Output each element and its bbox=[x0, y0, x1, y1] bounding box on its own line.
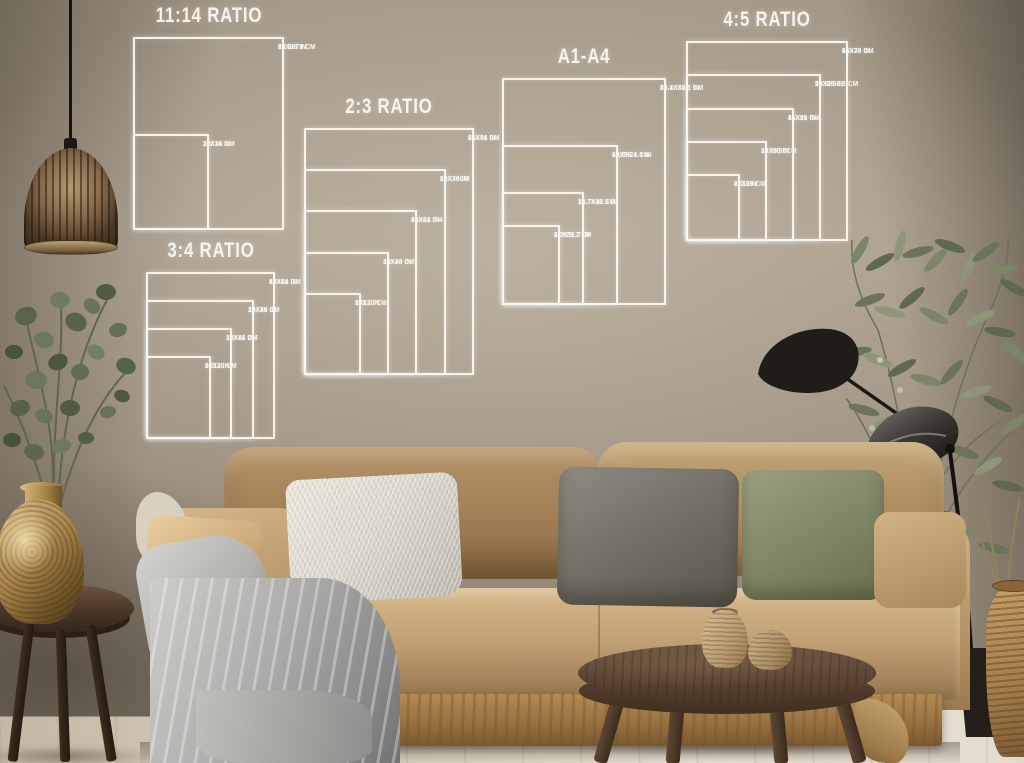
ceramic-vase-tall bbox=[702, 610, 748, 668]
scene: 11:14 RATIO22X28 IN55.9X71 CM11X14 IN28X… bbox=[0, 0, 1024, 763]
pillow-olive bbox=[742, 470, 884, 600]
pillow-grey bbox=[557, 466, 739, 607]
eucalyptus-plant-left bbox=[3, 284, 138, 505]
lamp-upper-shade bbox=[758, 329, 859, 393]
eucalyptus-leaves bbox=[3, 284, 138, 462]
pillow-tan bbox=[874, 512, 966, 608]
wicker-basket bbox=[986, 585, 1024, 757]
ceramic-vase-short bbox=[748, 630, 792, 670]
throw-blanket-tail bbox=[196, 690, 372, 763]
